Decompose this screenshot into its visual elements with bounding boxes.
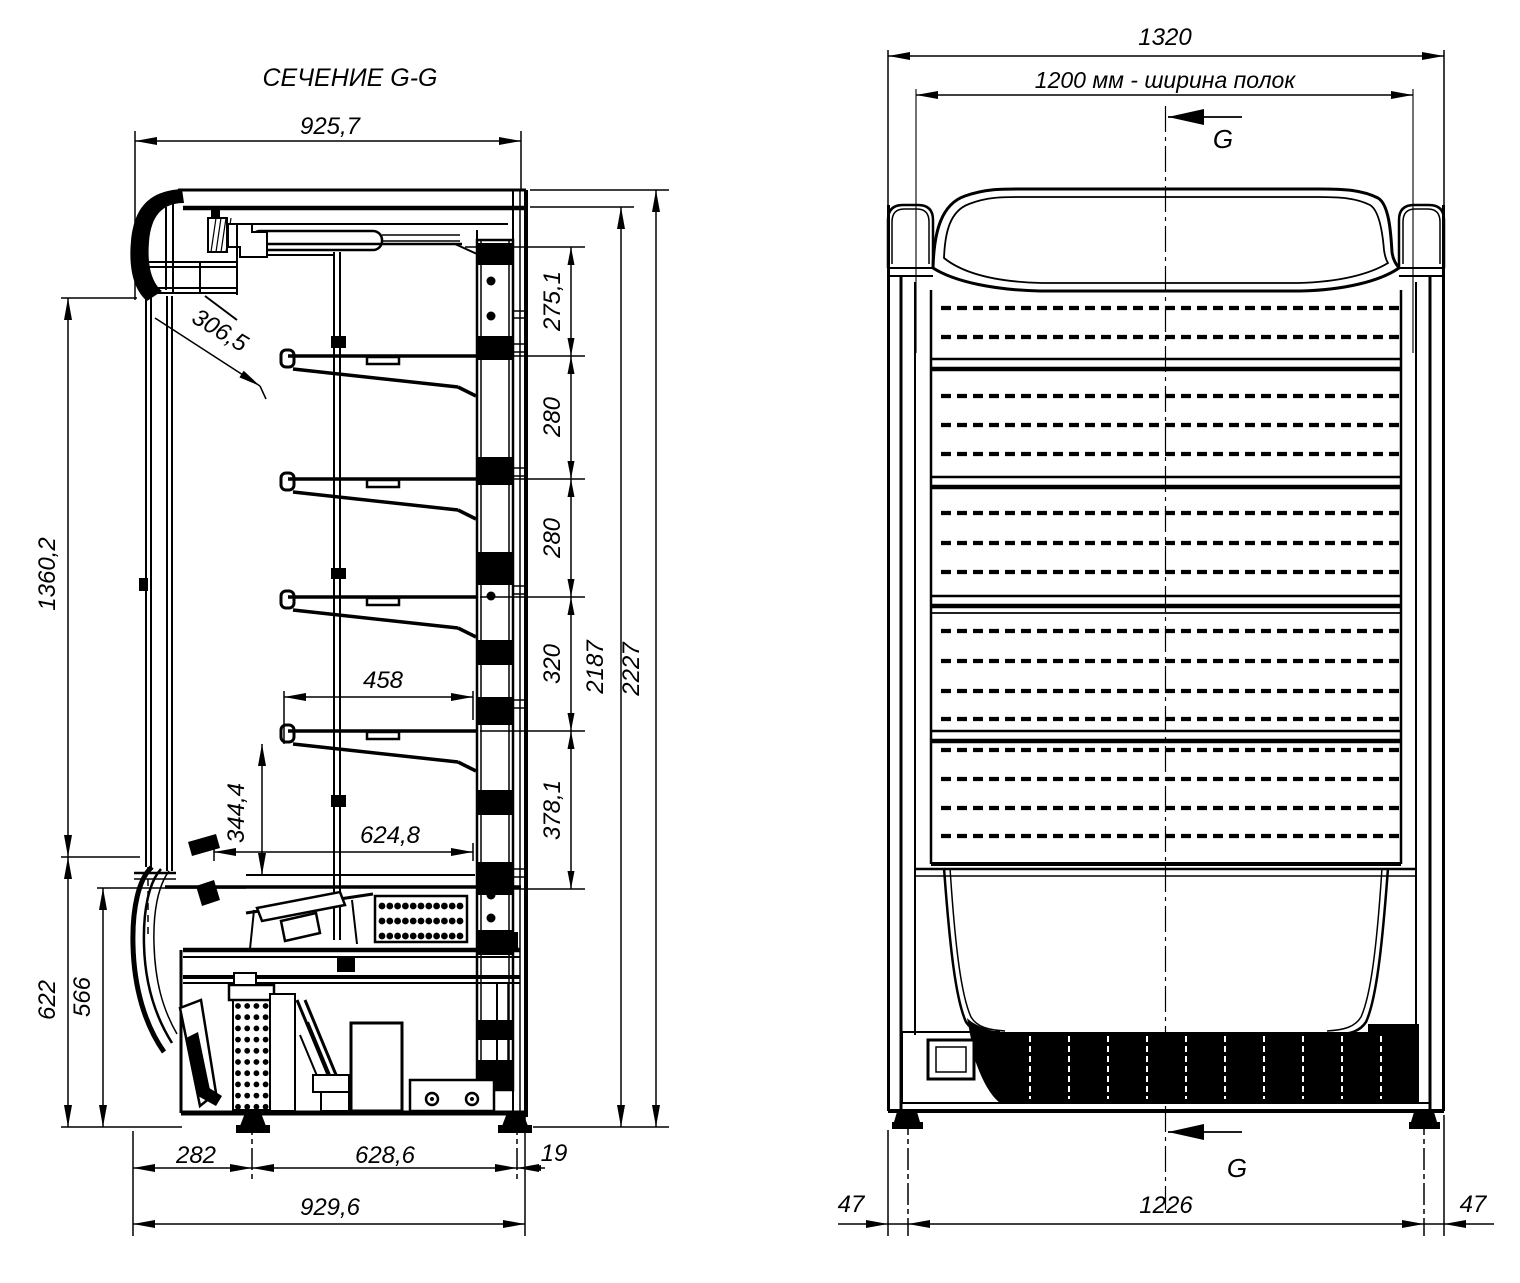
svg-text:47: 47 xyxy=(1460,1191,1488,1218)
svg-text:2227: 2227 xyxy=(618,641,645,697)
svg-text:СЕЧЕНИЕ G-G: СЕЧЕНИЕ G-G xyxy=(262,64,437,92)
svg-text:622: 622 xyxy=(34,980,61,1020)
svg-text:275,1: 275,1 xyxy=(539,271,566,332)
svg-text:378,1: 378,1 xyxy=(539,780,566,840)
svg-text:2187: 2187 xyxy=(582,639,609,695)
svg-text:47: 47 xyxy=(838,1191,866,1218)
svg-text:G: G xyxy=(1213,124,1233,154)
svg-text:1200 мм - ширина полок: 1200 мм - ширина полок xyxy=(1035,67,1297,93)
svg-text:925,7: 925,7 xyxy=(300,113,362,140)
svg-text:320: 320 xyxy=(539,643,566,684)
svg-text:280: 280 xyxy=(539,396,566,438)
svg-text:280: 280 xyxy=(539,517,566,559)
svg-text:1360,2: 1360,2 xyxy=(34,537,61,610)
svg-text:566: 566 xyxy=(69,976,96,1017)
svg-text:929,6: 929,6 xyxy=(300,1194,361,1221)
svg-text:344,4: 344,4 xyxy=(223,783,250,843)
svg-text:G: G xyxy=(1227,1153,1247,1183)
svg-text:282: 282 xyxy=(175,1142,216,1169)
svg-text:1226: 1226 xyxy=(1139,1192,1193,1219)
svg-text:1320: 1320 xyxy=(1138,24,1192,51)
svg-text:458: 458 xyxy=(363,667,404,694)
svg-text:628,6: 628,6 xyxy=(355,1142,416,1169)
svg-text:624,8: 624,8 xyxy=(360,822,421,849)
svg-text:19: 19 xyxy=(541,1140,568,1167)
